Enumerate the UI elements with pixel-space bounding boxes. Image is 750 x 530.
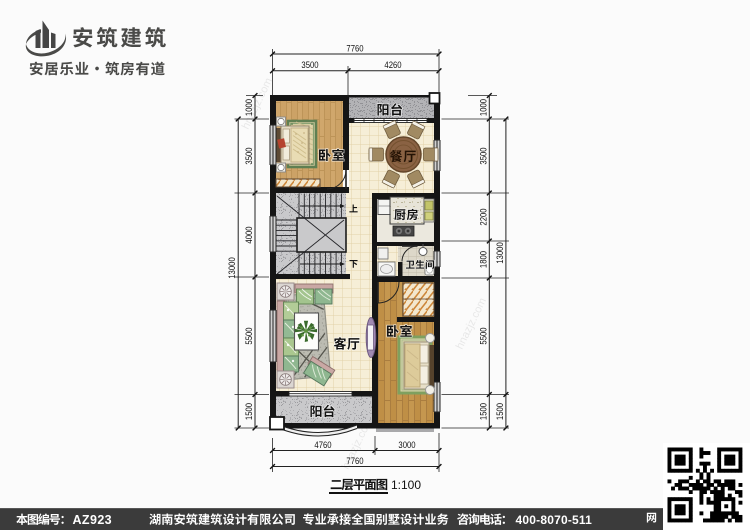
svg-text:3500: 3500 [243,147,254,164]
svg-text:4260: 4260 [384,60,401,71]
svg-text:1000: 1000 [478,99,489,116]
svg-text:1500: 1500 [478,403,489,420]
svg-text:AZ923: AZ923 [73,513,113,527]
svg-text:13000: 13000 [227,257,238,279]
svg-text:5500: 5500 [243,327,254,344]
svg-text:13000: 13000 [494,242,505,264]
svg-text:3000: 3000 [398,439,415,450]
svg-text:1800: 1800 [478,251,489,268]
svg-text:5500: 5500 [478,327,489,344]
svg-text:4760: 4760 [314,439,331,450]
svg-text:3500: 3500 [478,147,489,164]
svg-text:7760: 7760 [346,43,363,54]
svg-text:400-8070-511: 400-8070-511 [516,513,593,527]
svg-text:1000: 1000 [243,99,254,116]
svg-text:2200: 2200 [478,208,489,225]
svg-text:3500: 3500 [301,60,318,71]
svg-text:7760: 7760 [346,455,363,466]
svg-text:1500: 1500 [243,403,254,420]
svg-text:1500: 1500 [494,403,505,420]
svg-text:1:100: 1:100 [391,478,421,492]
svg-text:4000: 4000 [243,226,254,243]
